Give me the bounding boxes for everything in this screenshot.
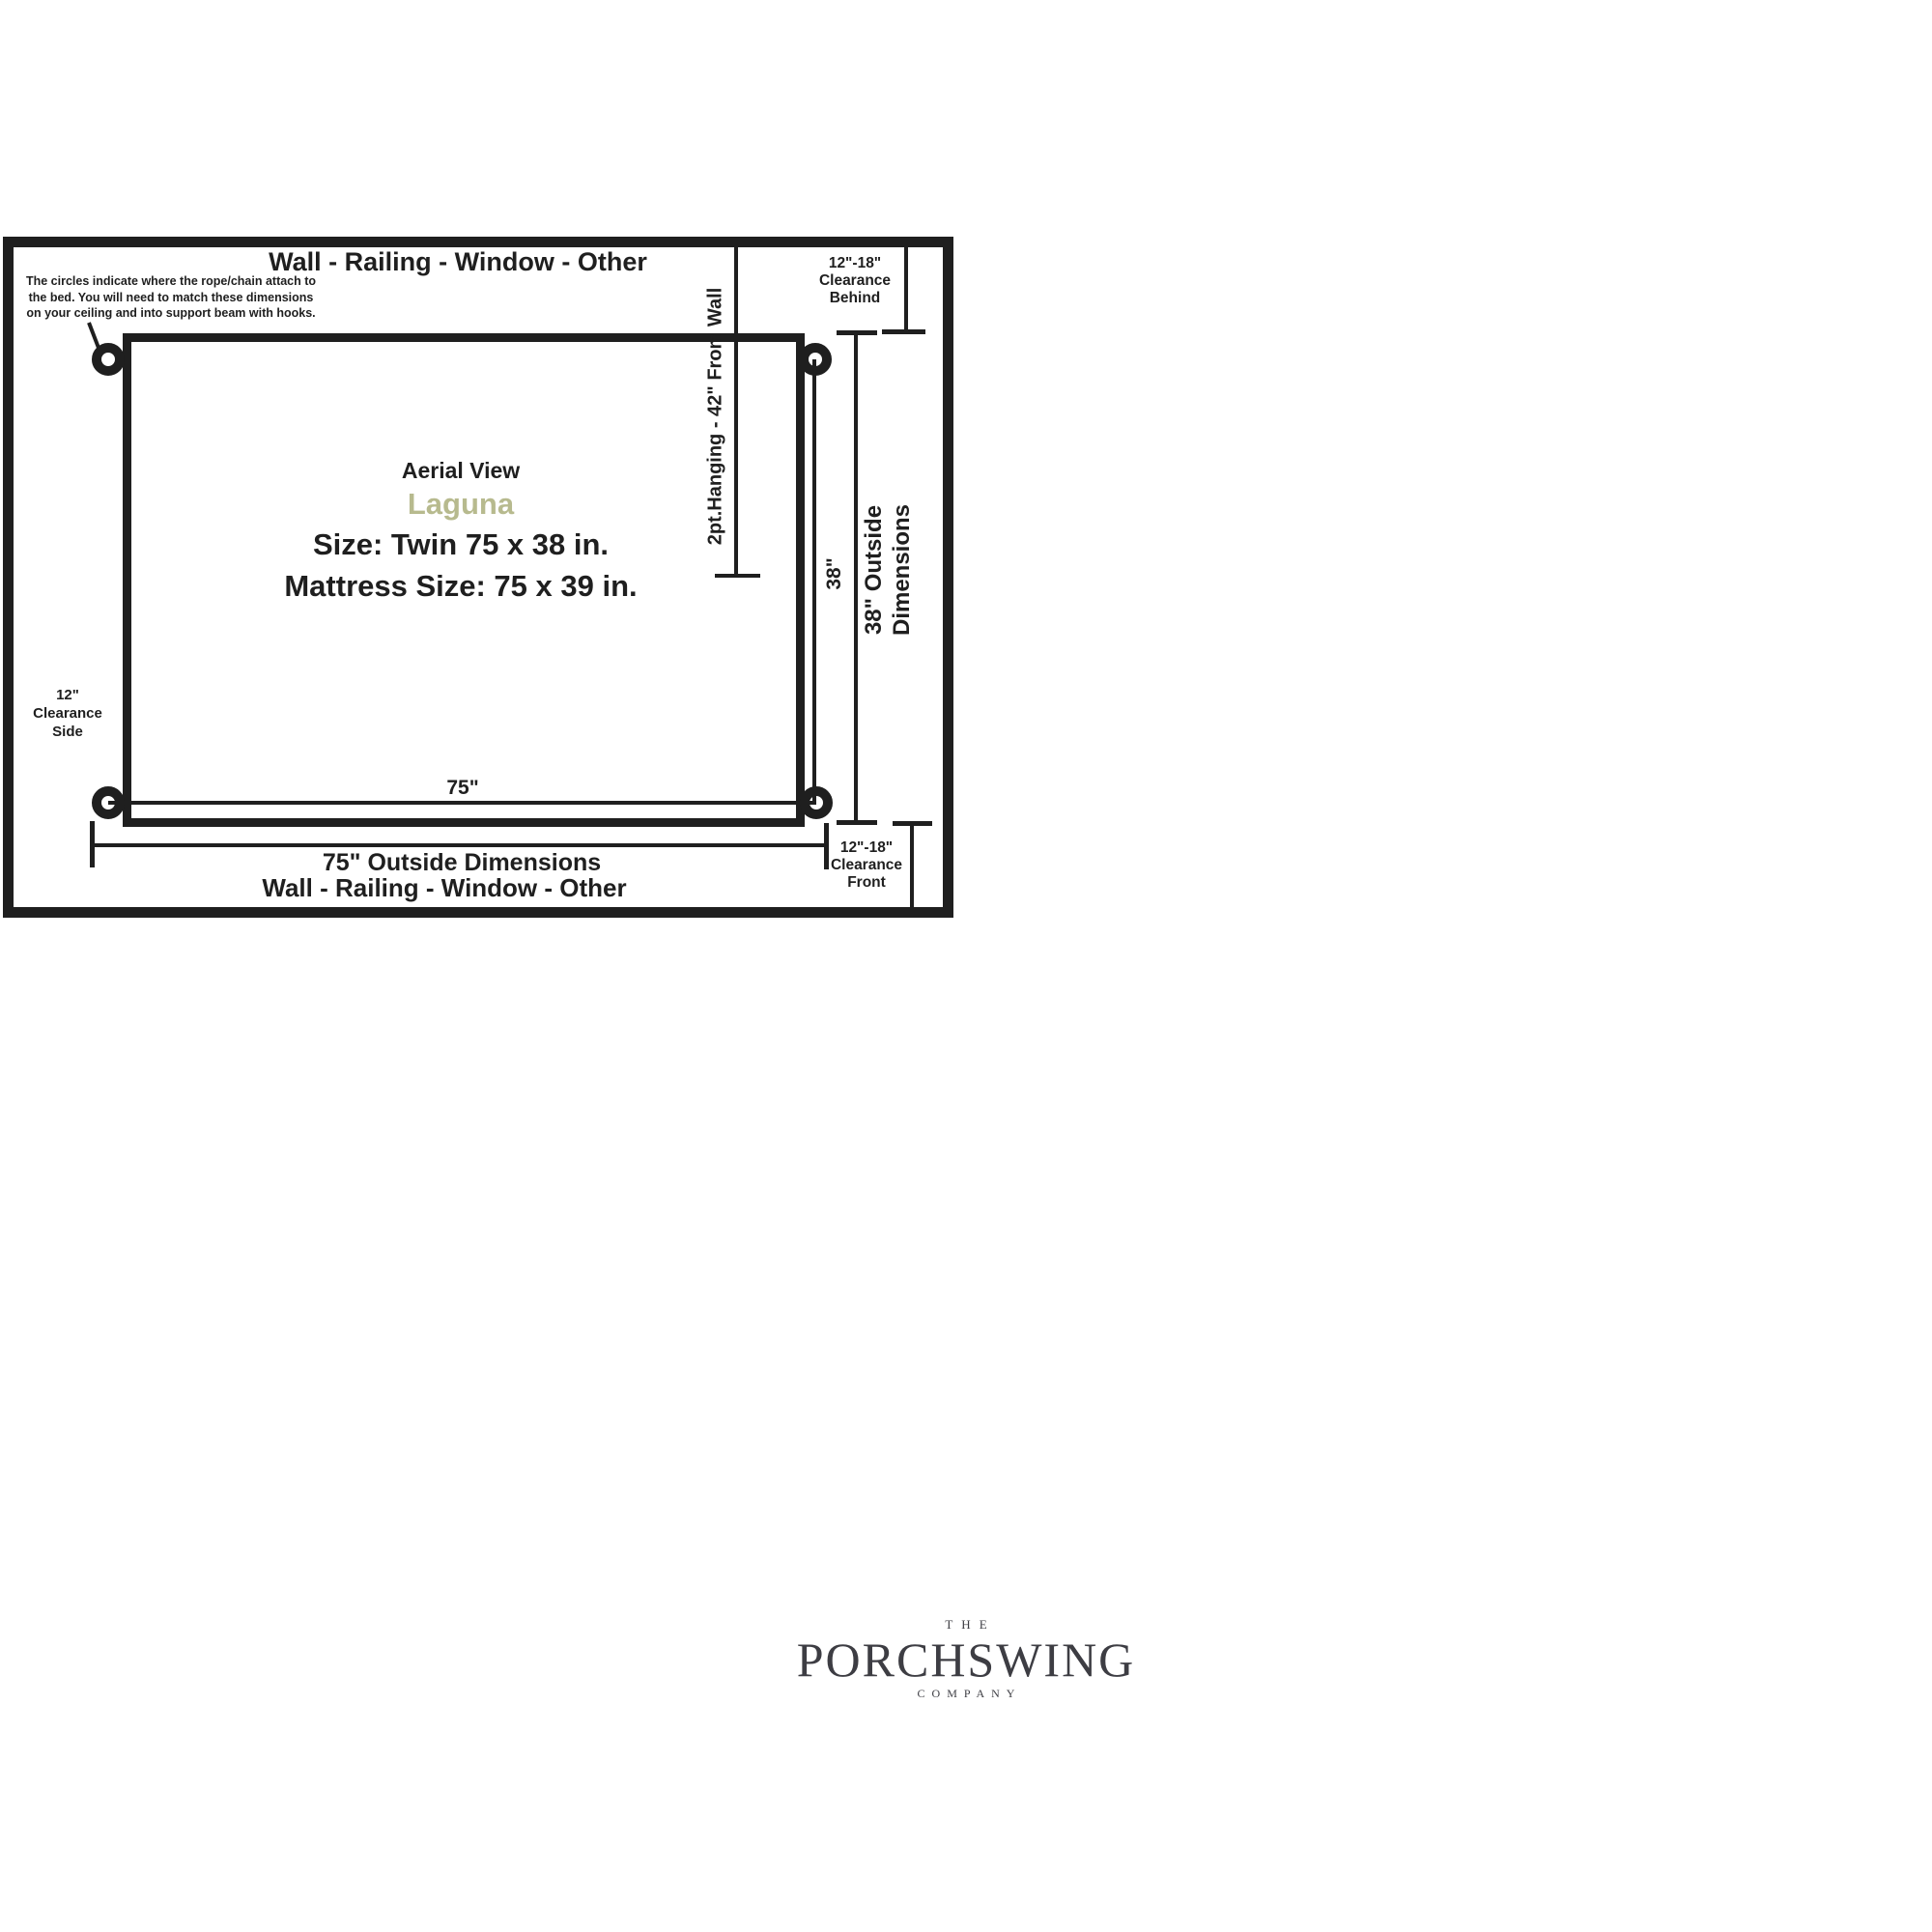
clearance-side-line-2: Clearance xyxy=(33,704,102,723)
aerial-diagram-page: Wall - Railing - Window - Other The circ… xyxy=(0,0,1932,1932)
width-outside-dim-cap-left xyxy=(90,821,95,867)
depth-outside-dim-cap-bottom xyxy=(837,820,877,825)
ring-connector-vertical xyxy=(812,359,816,803)
clearance-behind-dim-cap xyxy=(882,329,925,334)
bed-center-text: Aerial View Laguna Size: Twin 75 x 38 in… xyxy=(284,456,637,607)
attachment-ring-top-left xyxy=(92,343,125,376)
annotation-note: The circles indicate where the rope/chai… xyxy=(26,273,316,322)
logo-word-company: COMPANY xyxy=(797,1687,1136,1701)
clearance-front-dim-line xyxy=(910,823,914,907)
mattress-size-line: Mattress Size: 75 x 39 in. xyxy=(284,565,637,607)
clearance-side-label: 12" Clearance Side xyxy=(33,686,102,741)
depth-outside-label-line-1: 38" Outside xyxy=(860,504,888,636)
logo-word-porchswing: PORCHSWING xyxy=(797,1633,1136,1687)
clearance-front-line-3: Front xyxy=(831,874,902,892)
depth-outside-dim-line xyxy=(854,333,858,824)
size-line: Size: Twin 75 x 38 in. xyxy=(284,524,637,565)
width-outside-dim-cap-right xyxy=(824,823,829,869)
annotation-line-3: on your ceiling and into support beam wi… xyxy=(26,305,316,322)
logo-word-the: THE xyxy=(797,1617,1136,1633)
clearance-behind-dim-line xyxy=(904,247,908,333)
view-label: Aerial View xyxy=(284,456,637,485)
product-name: Laguna xyxy=(284,485,637,524)
porchswing-logo: THE PORCHSWING COMPANY xyxy=(797,1617,1136,1701)
hanging-dim-line xyxy=(734,247,738,578)
width-inner-label: 75" xyxy=(446,777,478,800)
wall-label-bottom: Wall - Railing - Window - Other xyxy=(262,875,626,901)
hanging-label: 2pt.Hanging - 42" From Wall xyxy=(705,288,727,546)
depth-outside-label: 38" Outside Dimensions xyxy=(860,504,916,636)
clearance-behind-label: 12"-18" Clearance Behind xyxy=(819,255,891,307)
clearance-behind-line-1: 12"-18" xyxy=(819,255,891,272)
clearance-behind-line-3: Behind xyxy=(819,290,891,307)
width-outside-dim-line xyxy=(92,843,826,847)
clearance-behind-line-2: Clearance xyxy=(819,272,891,290)
clearance-side-line-1: 12" xyxy=(33,686,102,704)
ring-connector-horizontal xyxy=(108,801,816,805)
width-outside-label: 75" Outside Dimensions xyxy=(323,850,601,876)
wall-label-top: Wall - Railing - Window - Other xyxy=(269,248,647,275)
clearance-front-line-1: 12"-18" xyxy=(831,839,902,857)
clearance-front-label: 12"-18" Clearance Front xyxy=(831,839,902,892)
annotation-line-1: The circles indicate where the rope/chai… xyxy=(26,273,316,290)
clearance-front-line-2: Clearance xyxy=(831,857,902,874)
depth-inner-label: 38" xyxy=(823,557,846,589)
depth-outside-dim-cap-top xyxy=(837,330,877,335)
hanging-dim-cap xyxy=(715,574,760,578)
clearance-side-line-3: Side xyxy=(33,723,102,741)
clearance-front-dim-cap xyxy=(893,821,932,826)
annotation-line-2: the bed. You will need to match these di… xyxy=(26,290,316,306)
depth-outside-label-line-2: Dimensions xyxy=(888,504,916,636)
